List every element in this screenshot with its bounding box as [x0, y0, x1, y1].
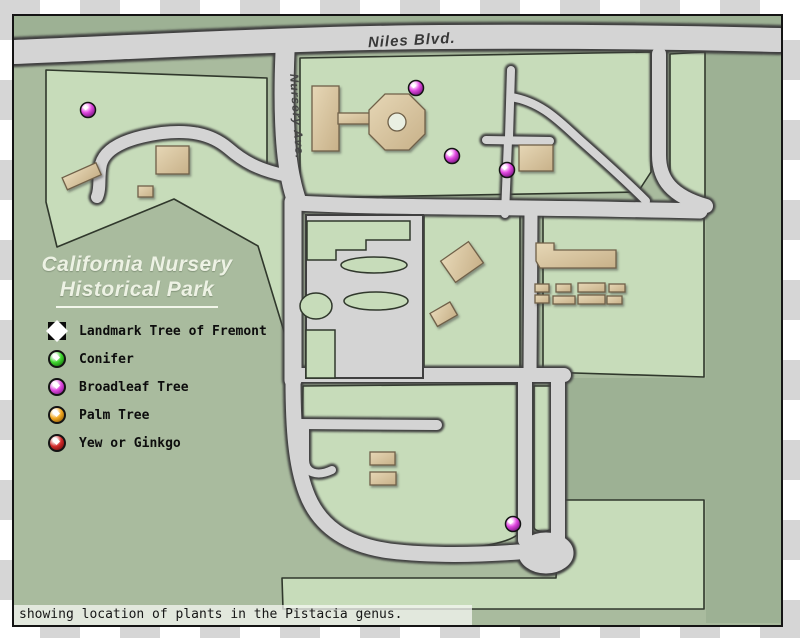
legend-label: Landmark Tree of Fremont: [79, 324, 267, 339]
legend-item-broadleaf-tree: Broadleaf Tree: [48, 373, 267, 401]
diamond-face: [46, 320, 68, 342]
palm-tree-ball-icon: [48, 406, 66, 424]
legend-item-landmark-tree-of-fremont: Landmark Tree of Fremont: [48, 317, 267, 345]
plant-marker-broadleaf[interactable]: [409, 81, 424, 96]
legend-item-yew-or-ginkgo: Yew or Ginkgo: [48, 429, 267, 457]
caption: showing location of plants in the Pistac…: [14, 605, 472, 625]
plant-marker-broadleaf[interactable]: [500, 163, 515, 178]
map-title-line1: California Nursery: [28, 252, 246, 277]
map-title-line2: Historical Park: [28, 277, 246, 302]
sparkle: [53, 410, 60, 417]
map-title: California Nursery Historical Park: [28, 252, 246, 308]
title-underline: [56, 306, 218, 308]
yew-or-ginkgo-ball-icon: [48, 434, 66, 452]
legend-label: Palm Tree: [79, 408, 149, 423]
sparkle: [53, 354, 60, 361]
legend-item-palm-tree: Palm Tree: [48, 401, 267, 429]
transparency-checkerboard: Niles Blvd. Nursery Ave. California Nurs…: [0, 0, 800, 638]
plant-marker-broadleaf[interactable]: [506, 517, 521, 532]
plant-marker-broadleaf[interactable]: [445, 149, 460, 164]
legend-label: Yew or Ginkgo: [79, 436, 181, 451]
legend-item-conifer: Conifer: [48, 345, 267, 373]
landmark-diamond-icon: [48, 322, 66, 340]
legend: Landmark Tree of FremontConiferBroadleaf…: [48, 317, 267, 457]
plant-marker-broadleaf[interactable]: [81, 103, 96, 118]
sparkle: [53, 438, 60, 445]
legend-label: Broadleaf Tree: [79, 380, 189, 395]
plaza: [300, 215, 423, 378]
sparkle: [53, 382, 60, 389]
legend-label: Conifer: [79, 352, 134, 367]
broadleaf-tree-ball-icon: [48, 378, 66, 396]
conifer-ball-icon: [48, 350, 66, 368]
